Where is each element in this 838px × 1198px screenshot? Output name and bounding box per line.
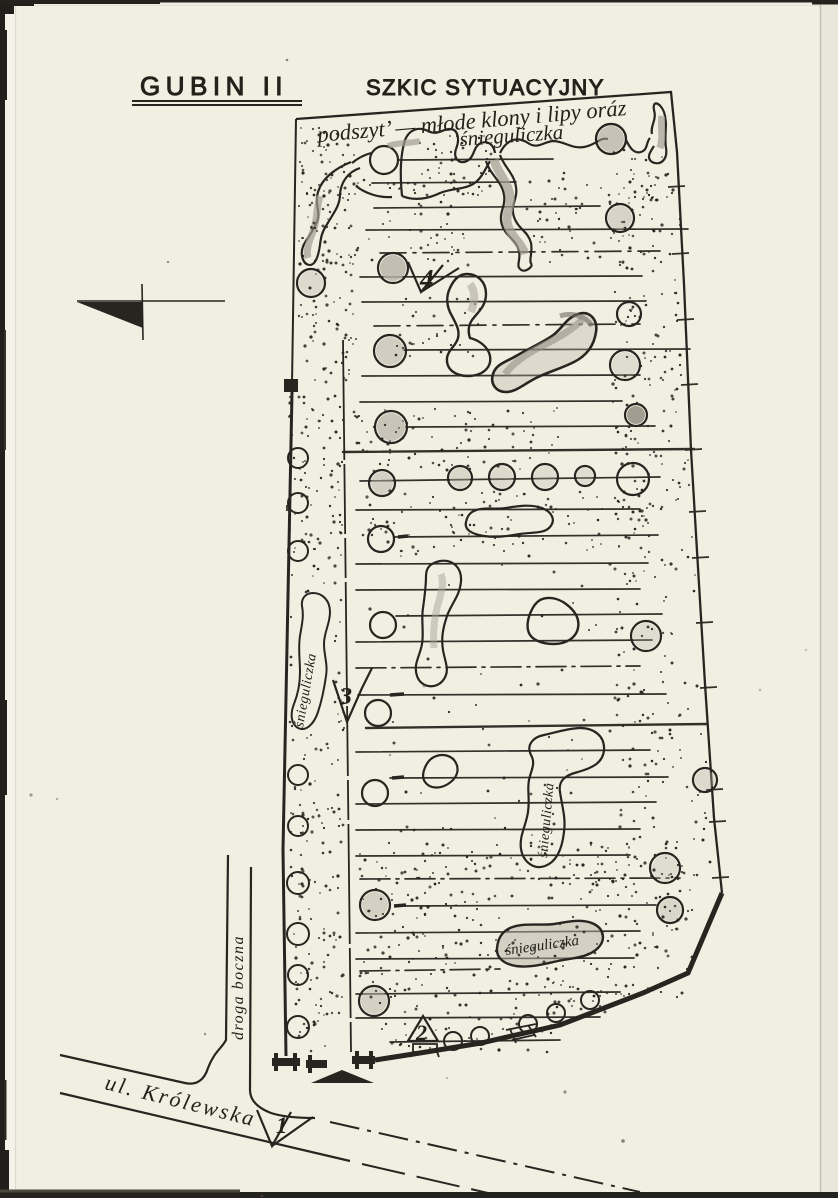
svg-text:GUBIN II: GUBIN II — [140, 71, 288, 101]
svg-text:3: 3 — [339, 684, 352, 710]
svg-text:2: 2 — [415, 1020, 427, 1045]
svg-text:droga boczna: droga boczna — [230, 935, 247, 1040]
svg-text:4: 4 — [419, 264, 434, 294]
svg-text:SZKIC SYTUACYJNY: SZKIC SYTUACYJNY — [366, 75, 605, 100]
